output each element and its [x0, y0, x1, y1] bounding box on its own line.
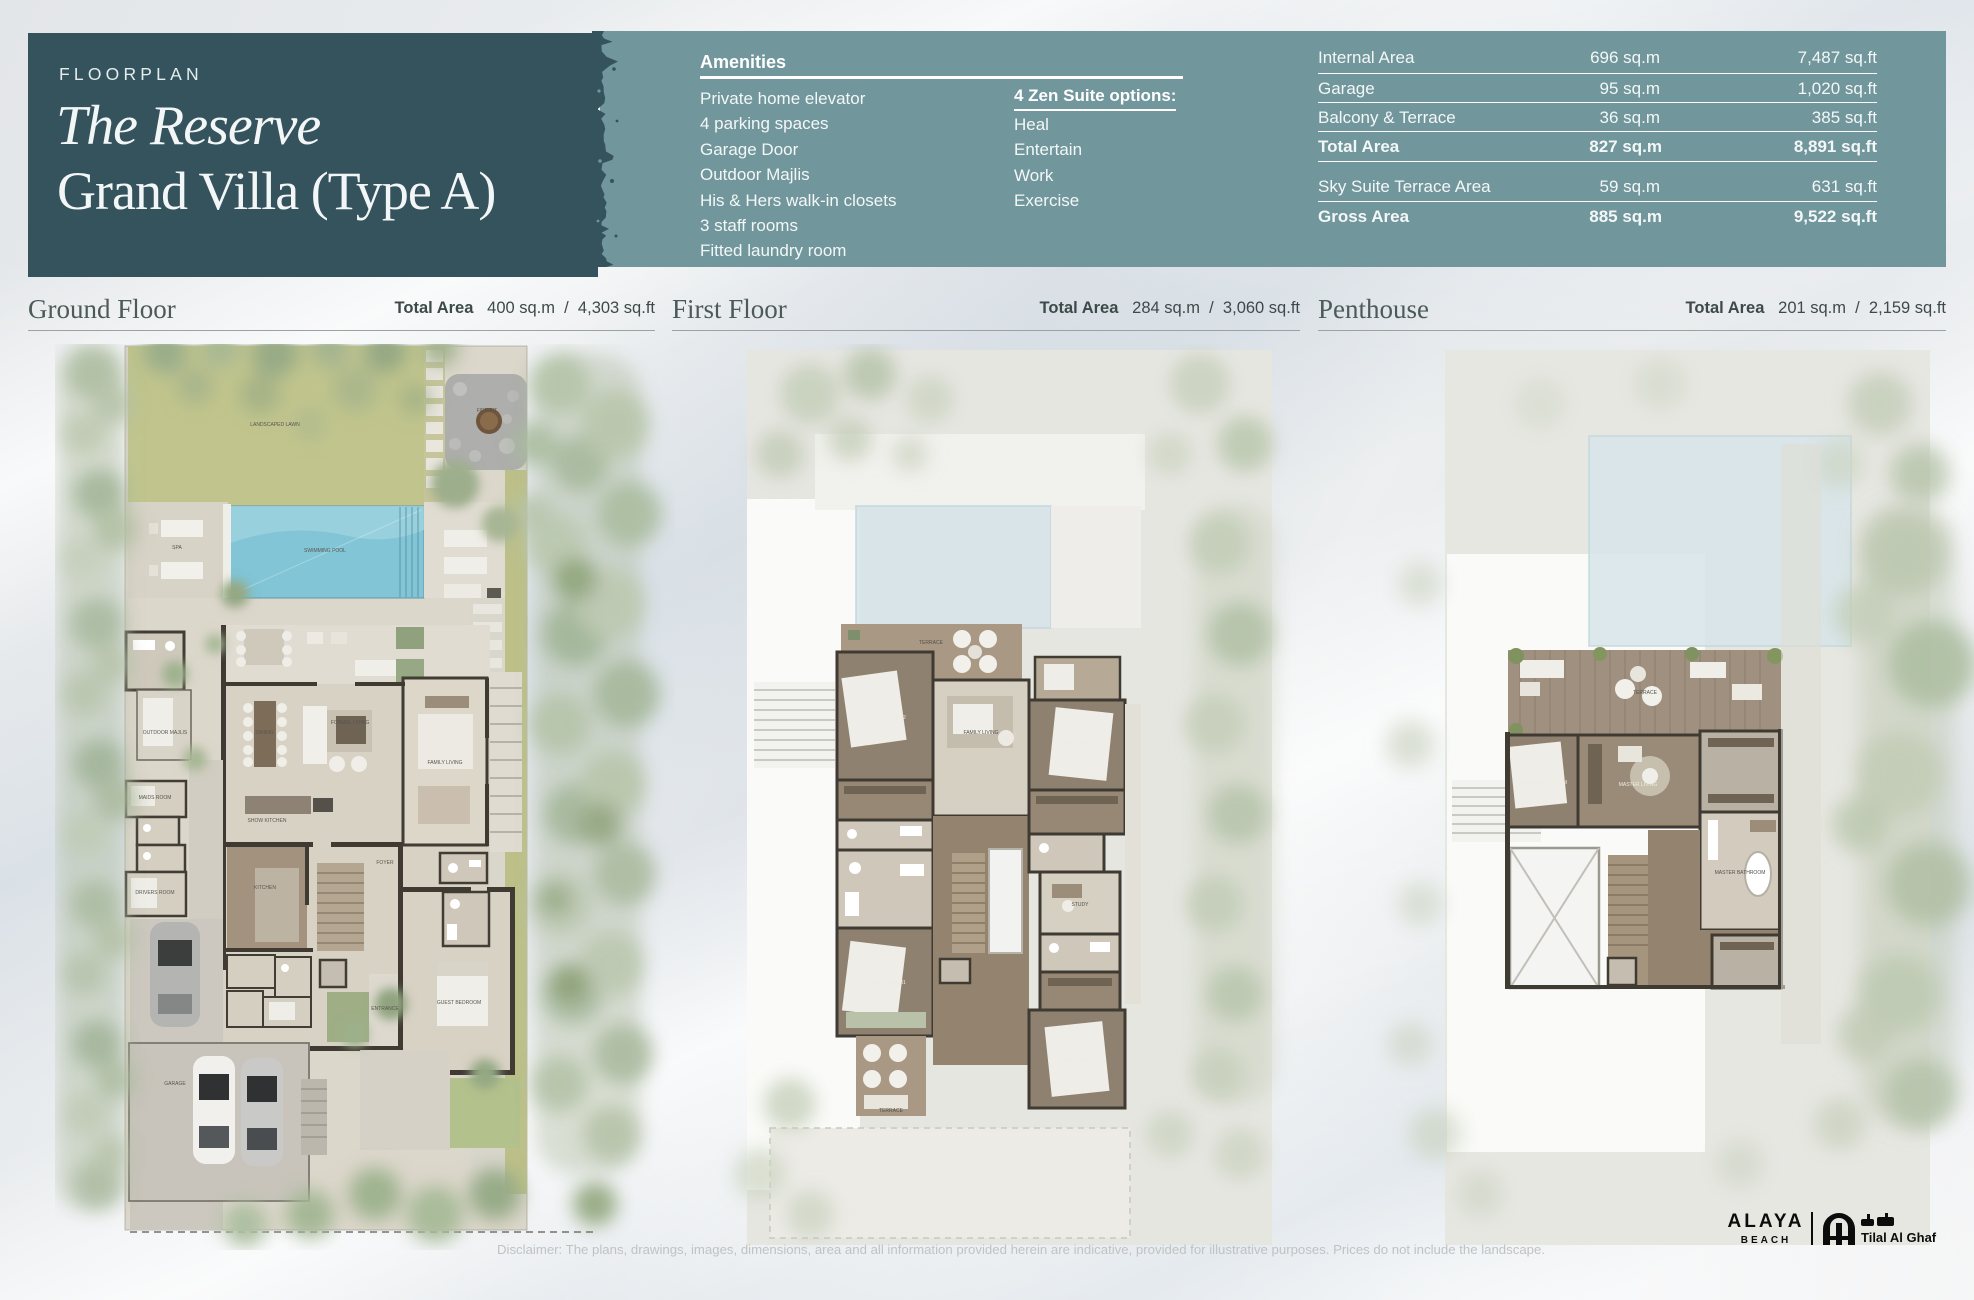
svg-text:TERRACE: TERRACE [879, 1108, 904, 1114]
svg-text:MASTER BATHROOM: MASTER BATHROOM [1715, 870, 1766, 876]
svg-text:FAMILY LIVING: FAMILY LIVING [427, 760, 462, 766]
svg-text:OUTDOOR MAJLIS: OUTDOOR MAJLIS [143, 730, 188, 736]
svg-text:FIRE PIT: FIRE PIT [477, 408, 498, 414]
svg-text:DINING: DINING [256, 730, 274, 736]
svg-text:LANDSCAPED LAWN: LANDSCAPED LAWN [250, 422, 300, 428]
svg-text:MAIDS ROOM: MAIDS ROOM [139, 795, 172, 801]
svg-text:FOYER: FOYER [376, 860, 394, 866]
svg-text:MASTER LIVING: MASTER LIVING [1619, 782, 1658, 788]
svg-text:GARAGE: GARAGE [164, 1081, 186, 1087]
svg-text:JUNIOR SUITE 02: JUNIOR SUITE 02 [864, 715, 906, 721]
svg-text:KITCHEN: KITCHEN [254, 885, 276, 891]
svg-text:DRIVERS ROOM: DRIVERS ROOM [135, 890, 174, 896]
svg-text:MASTER BEDROOM: MASTER BEDROOM [1519, 780, 1567, 786]
svg-text:STUDY: STUDY [1072, 902, 1090, 908]
svg-text:SWIMMING POOL: SWIMMING POOL [304, 548, 346, 554]
svg-text:SHOW KITCHEN: SHOW KITCHEN [248, 818, 287, 824]
svg-text:GUEST BEDROOM: GUEST BEDROOM [437, 1000, 481, 1006]
svg-text:JUNIOR SUITE 04: JUNIOR SUITE 04 [1056, 1058, 1098, 1064]
svg-text:Tilal Al Ghaf: Tilal Al Ghaf [1861, 1230, 1937, 1245]
svg-text:TERRACE: TERRACE [919, 640, 944, 646]
svg-text:SPA: SPA [172, 545, 182, 551]
svg-text:JUNIOR SUITE 03: JUNIOR SUITE 03 [1056, 740, 1098, 746]
svg-text:FAMILY LIVING: FAMILY LIVING [963, 730, 998, 736]
svg-text:TERRACE: TERRACE [1633, 690, 1658, 696]
svg-text:ENTRANCE: ENTRANCE [371, 1006, 399, 1012]
svg-text:FORMAL LIVING: FORMAL LIVING [331, 720, 370, 726]
svg-text:JUNIOR SUITE 01: JUNIOR SUITE 01 [864, 980, 906, 986]
